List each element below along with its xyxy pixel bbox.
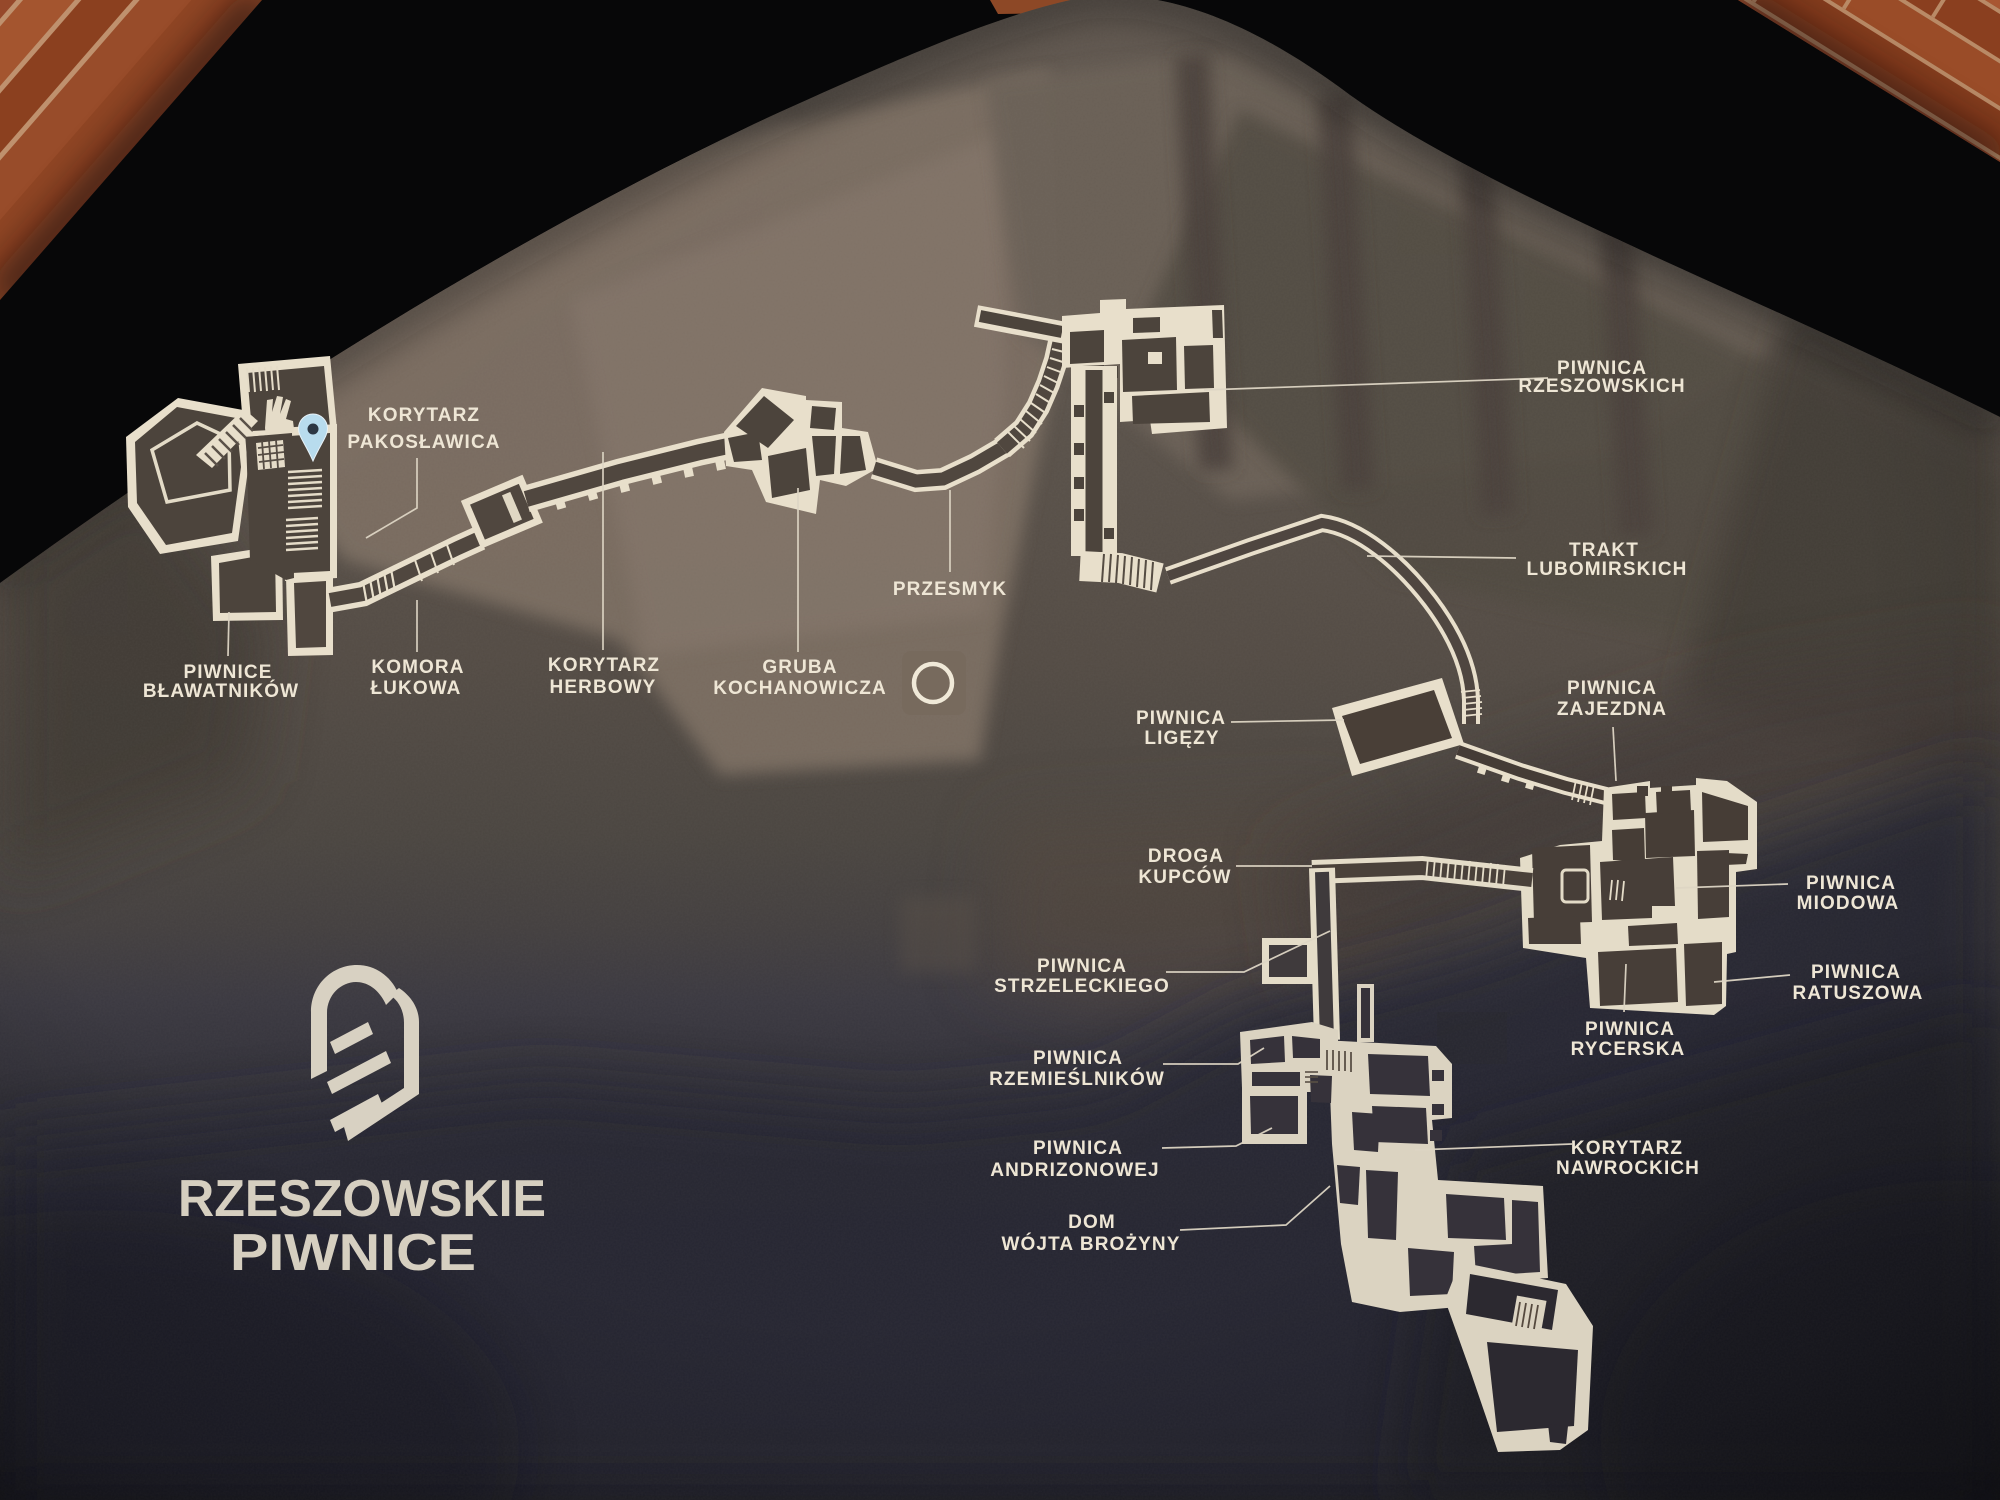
svg-text:RYCERSKA: RYCERSKA: [1571, 1039, 1686, 1060]
svg-text:PIWNICA: PIWNICA: [1811, 962, 1901, 983]
svg-text:DROGA: DROGA: [1148, 846, 1224, 867]
svg-text:ZAJEZDNA: ZAJEZDNA: [1557, 699, 1667, 720]
svg-text:RZEMIEŚLNIKÓW: RZEMIEŚLNIKÓW: [989, 1068, 1165, 1090]
svg-text:PIWNICA: PIWNICA: [1037, 956, 1127, 977]
svg-text:PIWNICA: PIWNICA: [1136, 708, 1226, 729]
svg-text:PIWNICA: PIWNICA: [1585, 1019, 1675, 1040]
svg-text:KORYTARZ: KORYTARZ: [548, 655, 660, 676]
svg-text:ŁUKOWA: ŁUKOWA: [370, 678, 461, 699]
svg-text:RATUSZOWA: RATUSZOWA: [1793, 983, 1924, 1004]
svg-text:KOMORA: KOMORA: [371, 657, 464, 678]
svg-text:PIWNICA: PIWNICA: [1567, 678, 1657, 699]
svg-text:PAKOSŁAWICA: PAKOSŁAWICA: [347, 432, 500, 453]
svg-text:MIODOWA: MIODOWA: [1797, 893, 1900, 914]
svg-text:GRUBA: GRUBA: [762, 657, 837, 678]
svg-text:KORYTARZ: KORYTARZ: [368, 405, 480, 426]
svg-text:KOCHANOWICZA: KOCHANOWICZA: [713, 678, 887, 699]
svg-text:BŁAWATNIKÓW: BŁAWATNIKÓW: [143, 680, 299, 702]
svg-text:WÓJTA BROŻYNY: WÓJTA BROŻYNY: [1002, 1233, 1181, 1255]
svg-text:TRAKT: TRAKT: [1569, 540, 1639, 561]
svg-text:RZESZOWSKIE: RZESZOWSKIE: [178, 1170, 546, 1228]
svg-text:LIGĘZY: LIGĘZY: [1144, 728, 1219, 749]
svg-text:PIWNICE: PIWNICE: [184, 662, 273, 683]
svg-text:ANDRIZONOWEJ: ANDRIZONOWEJ: [990, 1160, 1159, 1181]
svg-text:KORYTARZ: KORYTARZ: [1571, 1138, 1683, 1159]
svg-text:STRZELECKIEGO: STRZELECKIEGO: [994, 976, 1170, 997]
svg-text:PIWNICA: PIWNICA: [1806, 873, 1896, 894]
svg-text:NAWROCKICH: NAWROCKICH: [1556, 1158, 1700, 1179]
svg-text:PIWNICA: PIWNICA: [1033, 1048, 1123, 1069]
svg-text:RZESZOWSKICH: RZESZOWSKICH: [1518, 376, 1685, 397]
svg-text:DOM: DOM: [1068, 1212, 1116, 1233]
svg-text:PIWNICA: PIWNICA: [1033, 1138, 1123, 1159]
svg-text:LUBOMIRSKICH: LUBOMIRSKICH: [1527, 559, 1688, 580]
svg-text:PIWNICE: PIWNICE: [230, 1224, 476, 1282]
svg-text:KUPCÓW: KUPCÓW: [1138, 866, 1231, 888]
svg-text:HERBOWY: HERBOWY: [550, 677, 657, 698]
svg-text:PRZESMYK: PRZESMYK: [893, 579, 1007, 600]
